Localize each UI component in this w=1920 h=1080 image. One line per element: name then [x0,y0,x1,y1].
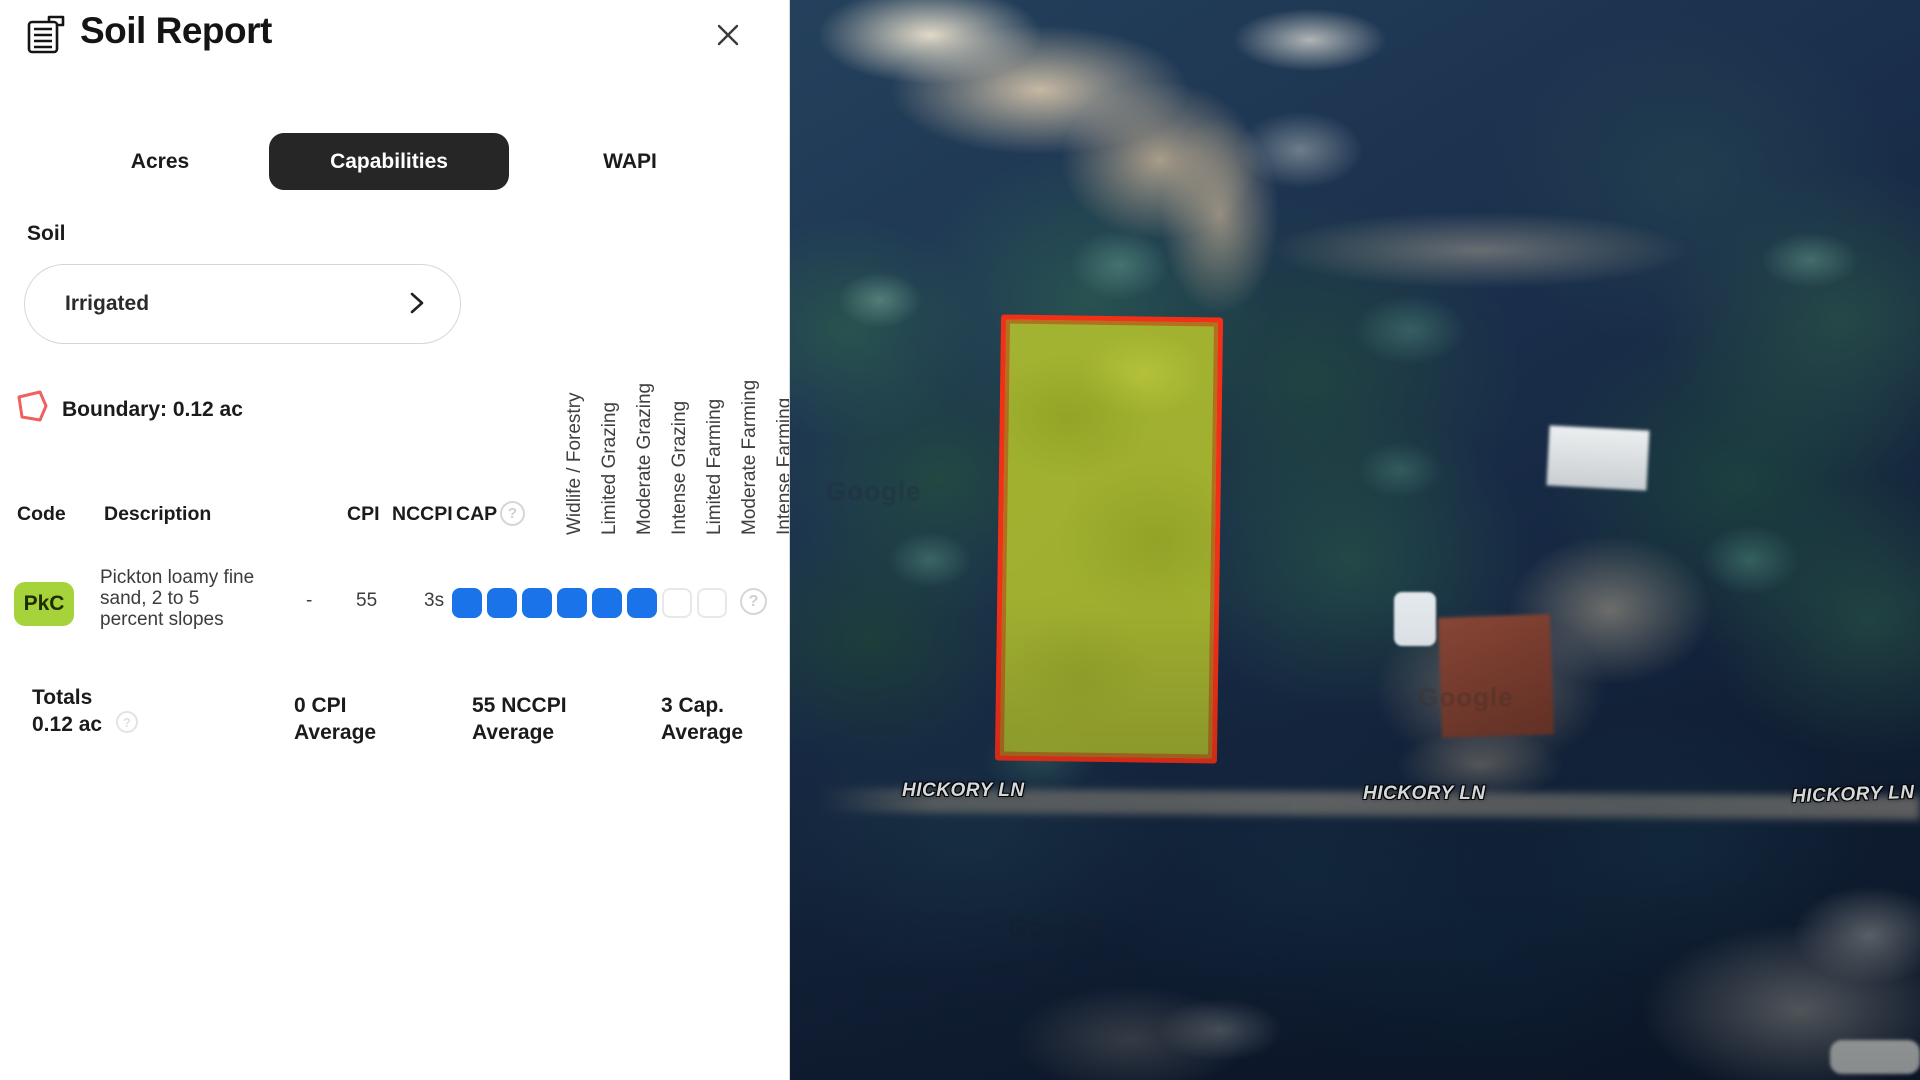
totals-cpi-average: 0 CPI Average [294,692,376,746]
capability-header-intense-farming: Intense Farming [774,283,790,535]
capability-square-2 [487,588,517,618]
totals-cap-caption: Average [661,719,743,746]
column-header-nccpi: NCCPI [392,503,453,526]
tab-acres[interactable]: Acres [85,133,235,190]
totals-cap-value: 3 Cap. [661,692,743,719]
capability-header-moderate-farming: Moderate Farming [739,283,761,535]
capability-header-limited-farming: Limited Farming [704,283,726,535]
soil-code-badge: PkC [14,582,74,626]
soil-description-line: Pickton loamy fine [100,567,290,588]
street-label-hickory-ln: HICKORY LN [902,780,1025,802]
column-header-description: Description [104,503,211,526]
close-icon [713,38,743,53]
parcel-boundary-polygon[interactable] [995,314,1223,763]
capability-squares [452,588,727,618]
close-button[interactable] [704,12,752,60]
street-label-hickory-ln: HICKORY LN [1792,782,1915,808]
capability-square-7 [662,588,692,618]
totals-nccpi-average: 55 NCCPI Average [472,692,567,746]
chevron-right-icon [406,290,428,319]
totals-title: Totals [32,684,102,711]
totals-cap-average: 3 Cap. Average [661,692,743,746]
tab-capabilities[interactable]: Capabilities [269,133,509,190]
map-watermark: Google [1008,912,1104,943]
panel-title: Soil Report [80,10,272,52]
capability-square-5 [592,588,622,618]
boundary-row: Boundary: 0.12 ac [14,388,243,431]
selector-value: Irrigated [65,292,149,316]
totals-cpi-caption: Average [294,719,376,746]
capability-header-limited-grazing: Limited Grazing [599,283,621,535]
row-cap-class: 3s [424,590,444,612]
soil-report-app: HICKORY LN HICKORY LN HICKORY LN Google … [0,0,1920,1080]
capability-header-moderate-grazing: Moderate Grazing [634,283,656,535]
totals-cpi-value: 0 CPI [294,692,376,719]
soil-report-panel: Soil Report Acres Capabilities WAPI Soil… [0,0,790,1080]
tab-wapi[interactable]: WAPI [560,133,700,190]
row-nccpi-value: 55 [356,590,377,612]
map-watermark: Google [1418,682,1514,713]
totals-help-icon[interactable]: ? [116,711,138,733]
capability-square-8 [697,588,727,618]
capability-square-1 [452,588,482,618]
capability-square-6 [627,588,657,618]
red-roof-building [1438,614,1554,738]
street-label-hickory-ln: HICKORY LN [1363,783,1486,805]
column-header-cap: CAP [456,503,497,526]
boundary-label: Boundary: 0.12 ac [62,398,243,422]
capability-square-4 [557,588,587,618]
soil-description-line: sand, 2 to 5 [100,588,290,609]
boundary-polygon-icon [14,388,50,431]
soil-description-line: percent slopes [100,609,290,630]
white-boat [1830,1040,1920,1074]
capability-square-3 [522,588,552,618]
satellite-map[interactable]: HICKORY LN HICKORY LN HICKORY LN Google … [790,0,1920,1080]
totals-nccpi-caption: Average [472,719,567,746]
capability-header-wildlife-forestry: Widlife / Forestry [564,283,586,535]
totals-nccpi-value: 55 NCCPI [472,692,567,719]
white-vehicle [1394,592,1436,646]
white-roof-building [1546,425,1649,490]
soil-description: Pickton loamy fine sand, 2 to 5 percent … [100,567,290,630]
cap-help-icon[interactable]: ? [500,501,525,526]
row-cpi-value: - [306,590,312,612]
totals-acres: 0.12 ac [32,711,102,738]
column-header-cpi: CPI [347,503,380,526]
row-help-icon[interactable]: ? [740,588,767,615]
soil-section-label: Soil [27,222,66,246]
column-header-code: Code [17,503,66,526]
totals-label: Totals 0.12 ac [32,684,102,738]
soil-report-icon [26,14,66,61]
irrigated-selector[interactable]: Irrigated [24,264,461,344]
map-watermark: Google [826,476,922,507]
capability-header-intense-grazing: Intense Grazing [669,283,691,535]
